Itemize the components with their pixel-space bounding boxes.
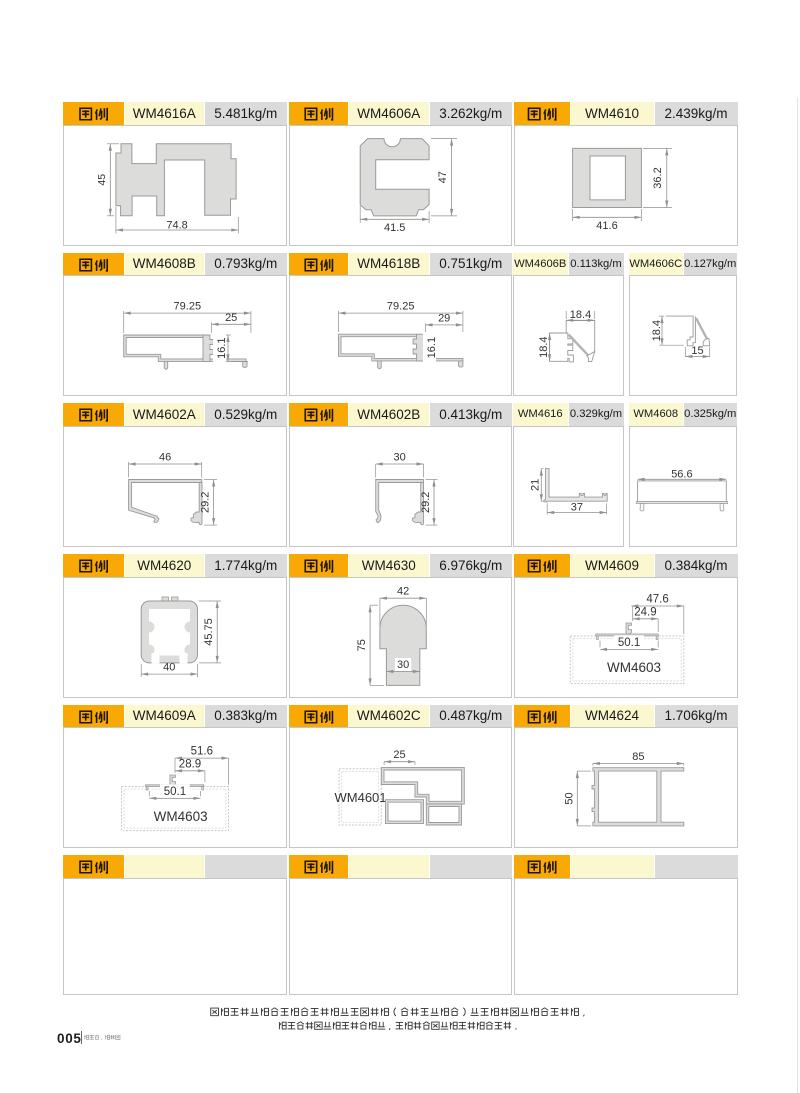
svg-text:WM4601: WM4601 (334, 790, 386, 805)
svg-text:WM4603: WM4603 (153, 809, 207, 824)
svg-text:29.2: 29.2 (420, 491, 432, 512)
svg-text:45: 45 (96, 173, 108, 185)
svg-text:15: 15 (691, 345, 703, 357)
svg-text:50: 50 (563, 792, 575, 804)
svg-text:50.1: 50.1 (617, 637, 639, 649)
svg-text:41.5: 41.5 (383, 222, 404, 234)
svg-text:29: 29 (438, 312, 450, 324)
svg-text:24.9: 24.9 (634, 606, 656, 618)
svg-text:18.4: 18.4 (570, 309, 591, 321)
svg-text:41.6: 41.6 (596, 220, 617, 232)
svg-text:16.1: 16.1 (426, 337, 438, 358)
svg-text:40: 40 (163, 661, 175, 673)
svg-text:18.4: 18.4 (651, 320, 663, 341)
svg-text:28.9: 28.9 (178, 758, 200, 770)
svg-text:79.25: 79.25 (386, 301, 414, 313)
svg-text:WM4603: WM4603 (606, 660, 660, 675)
svg-text:25: 25 (225, 312, 237, 324)
svg-text:42: 42 (396, 585, 408, 597)
svg-text:47.6: 47.6 (646, 593, 668, 605)
svg-text:29.2: 29.2 (199, 491, 211, 512)
svg-text:45.75: 45.75 (203, 618, 215, 646)
svg-text:30: 30 (393, 451, 405, 463)
svg-text:75: 75 (356, 639, 368, 651)
svg-text:16.1: 16.1 (216, 337, 228, 358)
svg-text:51.6: 51.6 (190, 746, 212, 758)
svg-text:18.4: 18.4 (538, 336, 550, 357)
svg-text:79.25: 79.25 (173, 301, 201, 313)
svg-text:21: 21 (530, 478, 542, 490)
svg-text:56.6: 56.6 (671, 468, 692, 480)
svg-text:25: 25 (393, 749, 405, 761)
svg-text:47: 47 (437, 171, 449, 183)
svg-text:36.2: 36.2 (652, 167, 664, 188)
svg-text:46: 46 (158, 451, 170, 463)
svg-text:85: 85 (632, 751, 644, 763)
svg-text:30: 30 (396, 659, 408, 671)
svg-text:37: 37 (571, 501, 583, 513)
svg-text:50.1: 50.1 (163, 786, 185, 798)
svg-text:74.8: 74.8 (166, 219, 187, 231)
